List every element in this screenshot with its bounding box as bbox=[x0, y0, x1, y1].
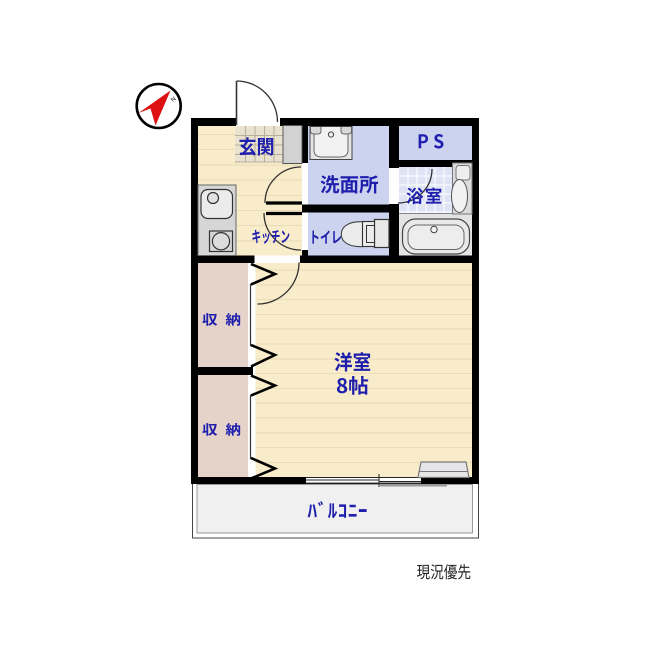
svg-text:N: N bbox=[170, 96, 177, 103]
